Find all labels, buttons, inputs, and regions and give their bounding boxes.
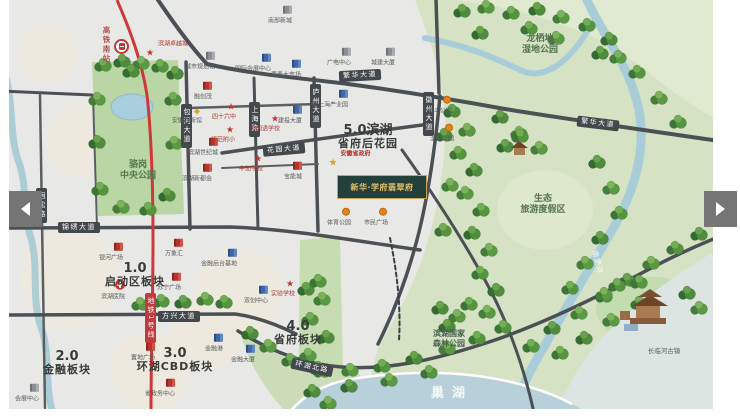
resort-clearing (497, 170, 593, 250)
left-gutter (0, 0, 9, 418)
metro-station-label: 高铁南站 (101, 26, 112, 64)
map-carousel: 繁华大道繁华大道花园大道锦绣大道方兴大道环湖北路包河大道上海路庐州大道徽州大道宿… (0, 0, 740, 418)
left-arrow-icon (21, 202, 30, 216)
carousel-prev-button[interactable] (9, 191, 42, 227)
right-arrow-icon (716, 202, 725, 216)
project-plate: 新华·学府翡翠府 (337, 175, 427, 199)
carousel-next-button[interactable] (704, 191, 737, 227)
train-station-icon (114, 39, 129, 54)
bottom-gutter (0, 409, 740, 418)
